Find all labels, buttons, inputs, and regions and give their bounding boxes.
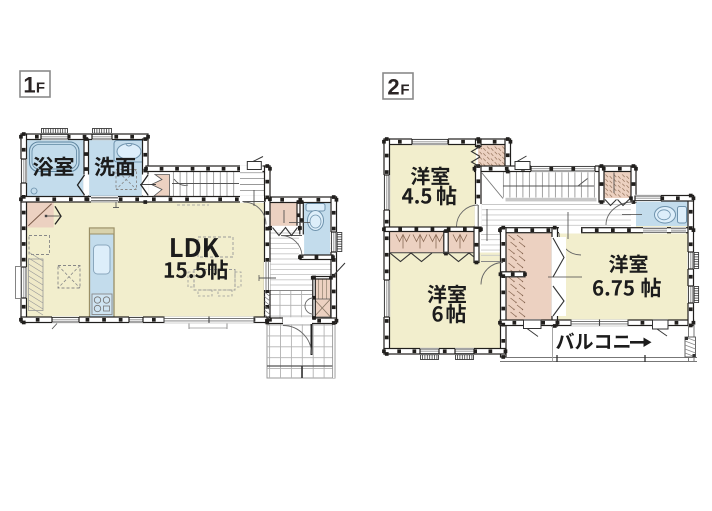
svg-text:F: F <box>400 82 409 99</box>
svg-text:2: 2 <box>387 75 399 100</box>
svg-text:F: F <box>36 80 45 97</box>
svg-text:1: 1 <box>23 73 35 98</box>
